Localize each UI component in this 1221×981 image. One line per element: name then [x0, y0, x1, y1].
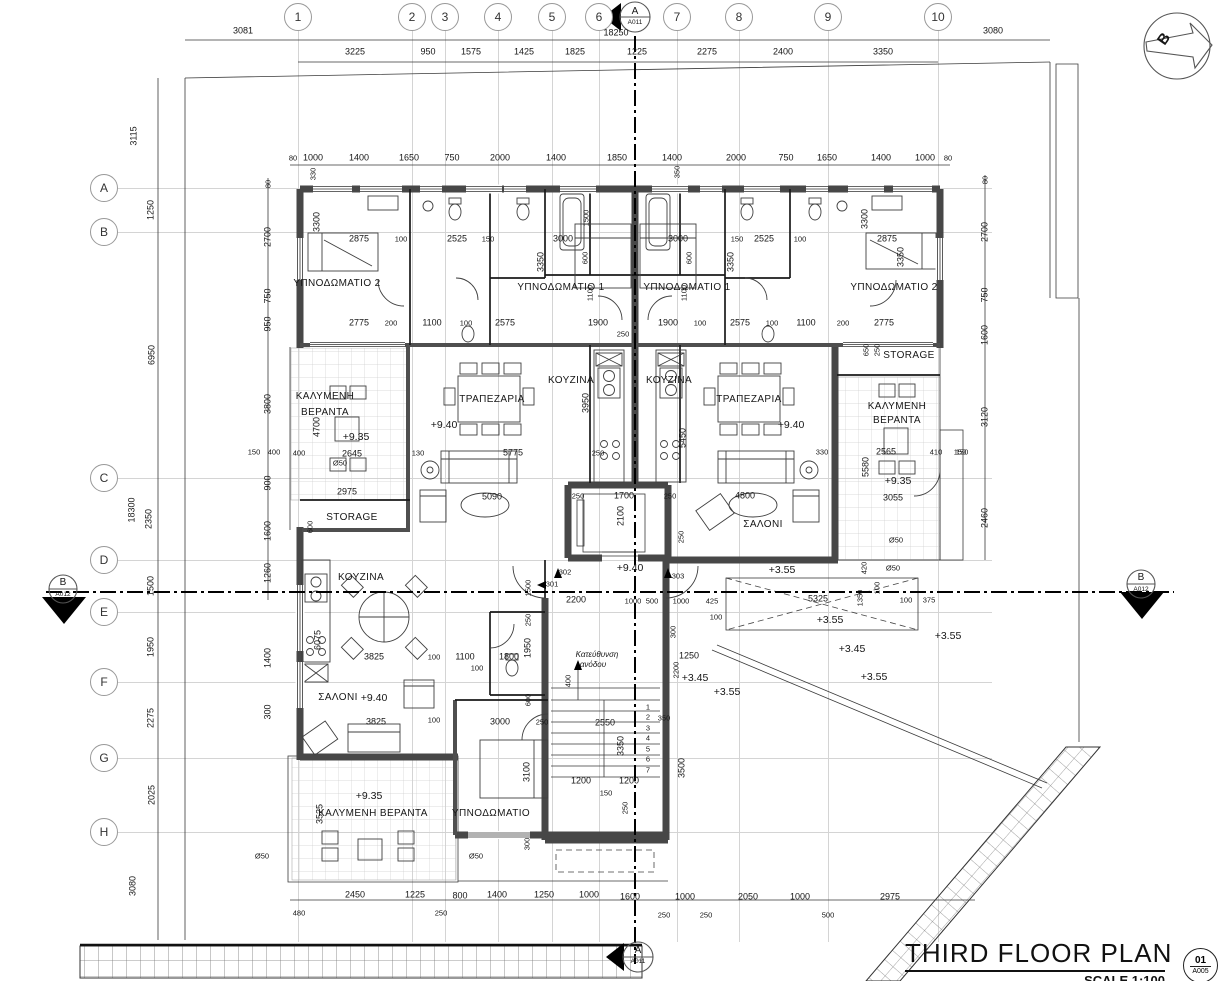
grid-row-bubble: G [90, 744, 118, 772]
dim-label: 250 [536, 718, 549, 726]
dim-label: 2550 [595, 719, 615, 728]
dim-label: 3500 [678, 758, 687, 778]
dim-label: 1250 [534, 891, 554, 900]
dim-label: 1 [646, 703, 650, 711]
dim-label: 2200 [672, 662, 680, 679]
dim-label: 300 [523, 838, 531, 851]
dim-label: 2525 [754, 235, 774, 244]
dim-label: 1260 [264, 563, 273, 583]
dim-label: 100 [460, 319, 473, 327]
dim-label: 150 [248, 448, 261, 456]
dim-label: 400 [564, 675, 572, 688]
dim-label: 1225 [405, 891, 425, 900]
dim-label: 3120 [981, 407, 990, 427]
room-label: ΥΠΝΟΔΩΜΑΤΙΟ 1 [643, 283, 730, 293]
room-label: ΥΠΝΟΔΩΜΑΤΙΟ 2 [293, 279, 380, 289]
room-label: STORAGE [883, 351, 935, 361]
dim-label: 3350 [537, 252, 546, 272]
dim-label: 250 [572, 492, 585, 500]
grid-column-bubble: 10 [924, 3, 952, 31]
dim-label: 2450 [345, 891, 365, 900]
grid-column-bubble: 7 [663, 3, 691, 31]
dim-label: 1700 [614, 492, 634, 501]
dim-label: Ø50 [886, 564, 900, 572]
grid-row-bubble: B [90, 218, 118, 246]
dim-label: 6950 [148, 345, 157, 365]
dim-label: 1500 [524, 580, 532, 597]
dim-label: 3000 [490, 718, 510, 727]
section-marker-label: B [60, 578, 67, 588]
grid-row-bubble: F [90, 668, 118, 696]
dim-label: 2700 [981, 222, 990, 242]
dim-label: 600 [581, 252, 589, 265]
dim-label: 1600 [264, 521, 273, 541]
dim-label: 100 [900, 596, 913, 604]
plan-linework [0, 0, 1221, 981]
dim-label: 1000 [579, 891, 599, 900]
dim-label: 950 [420, 48, 435, 57]
level-label: +3.55 [817, 615, 844, 626]
dim-label: 3350 [727, 252, 736, 272]
dim-label: 3225 [345, 48, 365, 57]
dim-label: 2525 [447, 235, 467, 244]
dim-label: 410 [930, 448, 943, 456]
grid-row-bubble: E [90, 598, 118, 626]
dim-label: 2575 [730, 319, 750, 328]
dim-label: 2050 [738, 893, 758, 902]
drawing-scale: SCALE 1:100 [905, 973, 1165, 981]
dim-label: 100 [428, 716, 441, 724]
dim-label: 1250 [147, 200, 156, 220]
grid-column-bubble: 9 [814, 3, 842, 31]
dim-label: 1850 [607, 154, 627, 163]
dim-label: 300 [669, 626, 677, 639]
dim-label: 350 [673, 166, 681, 179]
dim-label: 1600 [981, 325, 990, 345]
section-marker-code: A012 [1133, 587, 1148, 594]
dim-label: 7 [646, 766, 650, 774]
dim-label: 1400 [487, 891, 507, 900]
room-label: ΚΟΥΖΙΝΑ [548, 376, 594, 386]
north-arrow-icon [1144, 13, 1212, 79]
grid-column-bubble: 4 [484, 3, 512, 31]
dim-label: 303 [672, 572, 685, 580]
dim-label: 3525 [316, 804, 325, 824]
dim-label: 3825 [366, 718, 386, 727]
grid-row-bubble: A [90, 174, 118, 202]
dim-label: 2000 [726, 154, 746, 163]
dim-label: Ø50 [469, 852, 483, 860]
dim-label: 100 [428, 653, 441, 661]
level-label: +9.35 [356, 791, 383, 802]
dim-label: 1000 [675, 893, 695, 902]
dim-label: 200 [837, 319, 850, 327]
dim-label: 150 [600, 789, 613, 797]
level-label: +3.55 [769, 565, 796, 576]
dim-label: 400 [268, 448, 281, 456]
section-marker-label: B [1138, 573, 1145, 583]
dim-label: 3100 [523, 762, 532, 782]
dim-label: 3000 [553, 235, 573, 244]
dim-label: 3115 [130, 126, 139, 145]
dim-label: 3 [646, 724, 650, 732]
dim-label: 3081 [233, 27, 253, 36]
dim-label: Ø50 [255, 852, 269, 860]
section-marker-code: A011 [628, 20, 643, 27]
dim-label: 1000 [625, 597, 642, 605]
dim-label: 330 [309, 168, 317, 181]
dim-label: 6075 [314, 630, 323, 650]
room-label: ΣΑΛΟΝΙ [743, 520, 783, 530]
grid-column-bubble: 2 [398, 3, 426, 31]
room-label: ΒΕΡΑΝΤΑ [301, 408, 349, 418]
dim-label: 150 [482, 235, 495, 243]
level-label: +9.40 [431, 420, 458, 431]
room-label: ΥΠΝΟΔΩΜΑΤΙΟ 2 [850, 283, 937, 293]
stair-note-label: ανόδου [580, 661, 606, 669]
dim-label: 900 [264, 475, 273, 490]
dim-label: 130 [412, 449, 425, 457]
section-marker-label: A [635, 946, 642, 956]
dim-label: 6 [646, 755, 650, 763]
room-label: STORAGE [326, 513, 378, 523]
dim-label: 1900 [658, 319, 678, 328]
dim-label: 500 [646, 597, 659, 605]
dim-label: 5775 [503, 449, 523, 458]
dim-label: 100 [710, 613, 723, 621]
room-label: ΣΑΛΟΝΙ [318, 693, 358, 703]
dim-label: 600 [685, 252, 693, 265]
section-marker-code: A012 [55, 592, 70, 599]
dim-label: 80 [944, 154, 952, 162]
dim-label: 1825 [565, 48, 585, 57]
dim-label: 1200 [571, 777, 591, 786]
dim-label: 2275 [147, 708, 156, 728]
dim-label: 3300 [861, 209, 870, 229]
dim-label: 3825 [364, 653, 384, 662]
dim-label: 3080 [983, 27, 1003, 36]
dim-label: 2350 [145, 509, 154, 529]
drawing-title: THIRD FLOOR PLAN [905, 938, 1165, 972]
dim-label: 18300 [128, 497, 137, 522]
dim-label: 3350 [873, 48, 893, 57]
dim-label: 5450 [679, 428, 688, 448]
dim-label: 2460 [981, 508, 990, 528]
dim-label: 1575 [461, 48, 481, 57]
dim-label: 1000 [915, 154, 935, 163]
dim-label: 1000 [790, 893, 810, 902]
grid-column-bubble: 1 [284, 3, 312, 31]
dim-label: 800 [452, 892, 467, 901]
dim-label: 100 [471, 664, 484, 672]
dim-label: 1500 [147, 576, 156, 596]
grid-row-bubble: C [90, 464, 118, 492]
dim-label: 375 [923, 596, 936, 604]
level-label: +3.55 [714, 687, 741, 698]
dim-label: 1900 [588, 319, 608, 328]
dim-label: 3350 [617, 736, 626, 756]
dim-label: 250 [617, 330, 630, 338]
dim-label: 3800 [264, 394, 273, 414]
dim-label: 1400 [546, 154, 566, 163]
dim-label: 1400 [662, 154, 682, 163]
grid-column-bubble: 3 [431, 3, 459, 31]
dim-label: 1250 [679, 652, 699, 661]
dim-label: 3300 [313, 212, 322, 232]
sheet-number: 01 [1195, 955, 1206, 966]
dim-label: 2875 [877, 235, 897, 244]
level-label: +3.45 [839, 644, 866, 655]
dim-label: 2975 [337, 488, 357, 497]
dim-label: 2400 [773, 48, 793, 57]
room-label: ΤΡΑΠΕΖΑΡΙΑ [716, 395, 782, 405]
dim-label: 1400 [264, 648, 273, 668]
dim-label: 250 [700, 911, 713, 919]
dim-label: 5090 [482, 493, 502, 502]
section-marker-label: A [632, 7, 639, 17]
section-marker-code: A011 [631, 959, 646, 966]
dim-label: 1950 [524, 638, 533, 658]
dim-label: 750 [444, 154, 459, 163]
dim-label: 1400 [349, 154, 369, 163]
dim-label: 2 [646, 713, 650, 721]
dim-label: 2565 [876, 448, 896, 457]
dim-label: 250 [873, 344, 881, 357]
dim-label: 1650 [399, 154, 419, 163]
level-label: +3.55 [861, 672, 888, 683]
room-label: ΚΑΛΥΜΕΝΗ ΒΕΡΑΝΤΑ [318, 809, 428, 819]
dim-label: 1500 [582, 210, 590, 227]
dim-label: 1100 [796, 319, 815, 328]
dim-label: Ø50 [333, 459, 347, 467]
dim-label: 100 [873, 582, 881, 595]
title-block: THIRD FLOOR PLAN SCALE 1:100 [905, 938, 1165, 981]
level-label: +3.55 [935, 631, 962, 642]
room-label: ΒΕΡΑΝΤΑ [873, 416, 921, 426]
dim-label: 4 [646, 734, 650, 742]
dim-label: 3950 [582, 393, 591, 413]
dim-label: 750 [778, 154, 793, 163]
dim-label: 750 [264, 288, 273, 303]
dim-label: 1225 [627, 48, 647, 57]
dim-label: 1000 [673, 597, 690, 605]
dim-label: Ø50 [889, 536, 903, 544]
dim-label: 250 [658, 911, 671, 919]
dim-label: 80 [264, 180, 272, 188]
dim-label: 250 [621, 802, 629, 815]
dim-label: 330 [816, 448, 829, 456]
dim-label: 1425 [514, 48, 534, 57]
dim-label: 100 [794, 235, 807, 243]
room-label: ΥΠΝΟΔΩΜΑΤΙΟ [452, 809, 530, 819]
dim-label: 100 [694, 319, 707, 327]
dim-label: 100 [766, 319, 779, 327]
level-label: +9.40 [361, 693, 388, 704]
dim-label: 950 [264, 316, 273, 331]
room-label: ΚΑΛΥΜΕΝΗ [868, 402, 927, 412]
dim-label: 250 [664, 492, 677, 500]
level-label: +3.45 [682, 673, 709, 684]
dim-label: 1400 [871, 154, 891, 163]
dim-label: 750 [981, 287, 990, 302]
level-label: +9.35 [885, 476, 912, 487]
dim-label: 1000 [303, 154, 323, 163]
sheet-code: A005 [1190, 966, 1210, 976]
dim-label: 150 [954, 448, 967, 456]
dim-label: 250 [435, 909, 448, 917]
dim-label: 2875 [349, 235, 369, 244]
dim-label: 200 [385, 319, 398, 327]
dim-label: 2275 [697, 48, 717, 57]
dim-label: 350 [658, 714, 671, 722]
dim-label: 100 [395, 235, 408, 243]
dim-label: 2100 [617, 506, 626, 526]
grid-row-bubble: D [90, 546, 118, 574]
room-label: ΤΡΑΠΕΖΑΡΙΑ [459, 395, 525, 405]
dim-label: 500 [822, 911, 835, 919]
dim-label: 420 [860, 562, 868, 575]
dim-label: 300 [264, 704, 273, 719]
dim-label: 1800 [499, 653, 519, 662]
stair-note-label: Κατεύθυνση [576, 651, 619, 659]
dim-label: 2025 [148, 785, 157, 805]
dim-label: 2700 [264, 227, 273, 247]
dim-label: 1600 [620, 893, 640, 902]
level-label: +9.40 [778, 420, 805, 431]
dim-label: 3000 [668, 235, 688, 244]
room-label: ΥΠΝΟΔΩΜΑΤΙΟ 1 [517, 283, 604, 293]
dim-label: 480 [293, 909, 306, 917]
dim-label: 600 [306, 521, 314, 534]
dim-label: 5580 [862, 457, 871, 477]
dim-label: 4800 [735, 492, 755, 501]
dim-label: 2000 [490, 154, 510, 163]
dim-label: 250 [524, 614, 532, 627]
dim-label: 1100 [455, 653, 474, 662]
dim-label: 2200 [566, 596, 586, 605]
dim-label: 4700 [313, 417, 322, 437]
sheet-number-bubble: 01 A005 [1183, 948, 1218, 981]
dim-label: 3080 [129, 876, 138, 896]
drawing-sheet: THIRD FLOOR PLAN SCALE 1:100 01 A005 123… [0, 0, 1221, 981]
dim-label: 5 [646, 745, 650, 753]
dim-label: 2975 [880, 893, 900, 902]
dim-label: 302 [559, 568, 572, 576]
dim-label: 1200 [619, 777, 639, 786]
room-label: ΚΟΥΖΙΝΑ [338, 573, 384, 583]
dim-label: 425 [706, 597, 719, 605]
dim-label: 250 [677, 531, 685, 544]
dim-label: 80 [981, 176, 989, 184]
dim-label: 400 [293, 449, 306, 457]
grid-column-bubble: 8 [725, 3, 753, 31]
dim-label: 250 [592, 449, 605, 457]
dim-label: 1650 [817, 154, 837, 163]
level-label: +9.40 [617, 563, 644, 574]
grid-column-bubble: 5 [538, 3, 566, 31]
dim-label: 2575 [495, 319, 515, 328]
dim-label: 2775 [874, 319, 894, 328]
dim-label: 2775 [349, 319, 369, 328]
level-label: +9.35 [343, 432, 370, 443]
dim-label: 301 [546, 580, 559, 588]
dim-label: 18250 [603, 29, 628, 38]
grid-row-bubble: H [90, 818, 118, 846]
room-label: ΚΑΛΥΜΕΝΗ [296, 392, 355, 402]
dim-label: 1950 [147, 637, 156, 657]
dim-label: 650 [862, 344, 870, 357]
dim-label: 5325 [808, 595, 828, 604]
dim-label: 150 [731, 235, 744, 243]
dim-label: 3055 [883, 494, 903, 503]
room-label: ΚΟΥΖΙΝΑ [646, 376, 692, 386]
dim-label: 2645 [342, 450, 362, 459]
dim-label: 1350 [856, 590, 864, 607]
dim-label: 600 [524, 694, 532, 707]
dim-label: 1100 [422, 319, 441, 328]
dim-label: 80 [289, 154, 297, 162]
dim-label: 3350 [897, 247, 906, 267]
